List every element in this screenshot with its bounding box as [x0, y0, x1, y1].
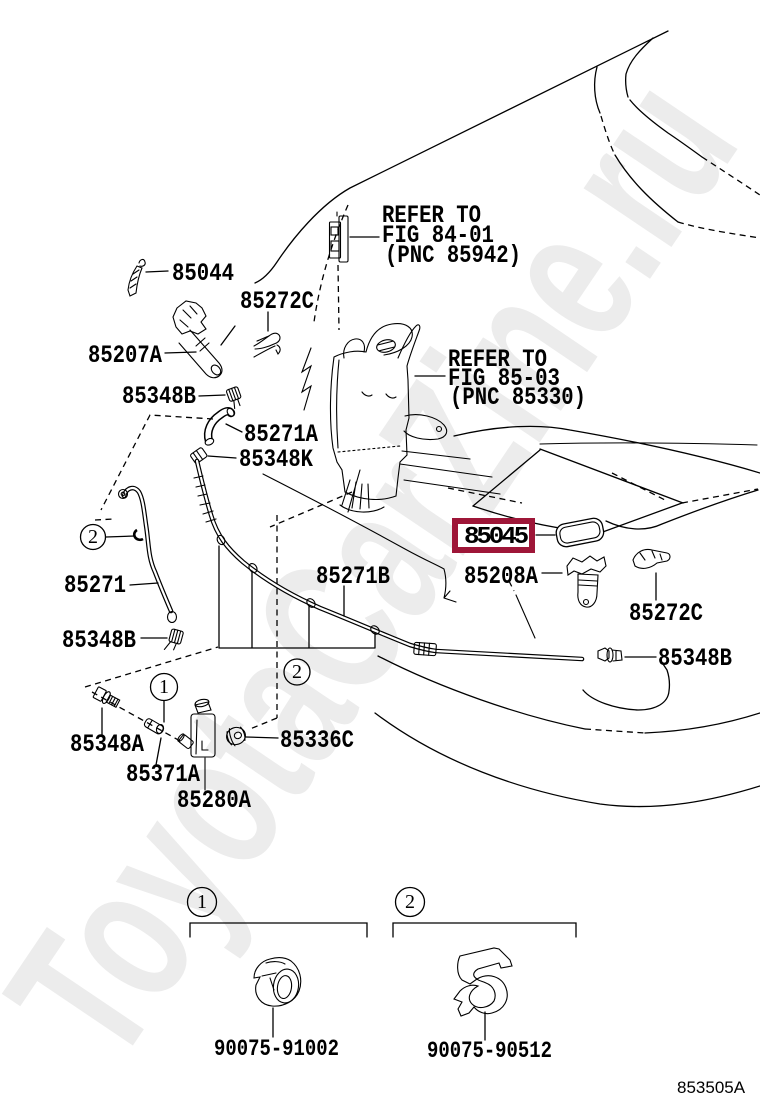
- svg-text:85371A: 85371A: [126, 760, 200, 789]
- svg-text:85272C: 85272C: [629, 599, 703, 628]
- svg-text:85208A: 85208A: [464, 562, 538, 591]
- svg-text:2: 2: [405, 891, 415, 913]
- svg-text:1: 1: [197, 891, 207, 913]
- svg-text:2: 2: [292, 661, 302, 683]
- svg-text:(PNC 85330): (PNC 85330): [450, 383, 586, 412]
- svg-text:853505A: 853505A: [677, 1078, 746, 1097]
- svg-text:85348B: 85348B: [62, 626, 136, 655]
- svg-text:85271: 85271: [64, 571, 126, 600]
- svg-text:90075-91002: 90075-91002: [214, 1036, 339, 1062]
- svg-text:85280A: 85280A: [177, 786, 251, 815]
- svg-text:85044: 85044: [172, 259, 234, 288]
- svg-text:85348A: 85348A: [70, 730, 144, 759]
- svg-text:1: 1: [159, 676, 169, 698]
- svg-text:85271B: 85271B: [316, 562, 390, 591]
- svg-text:85348K: 85348K: [239, 445, 313, 474]
- svg-text:85348B: 85348B: [122, 382, 196, 411]
- svg-text:85336C: 85336C: [280, 726, 354, 755]
- svg-text:85207A: 85207A: [88, 341, 162, 370]
- svg-text:2: 2: [88, 526, 98, 548]
- svg-text:(PNC 85942): (PNC 85942): [385, 241, 521, 270]
- svg-text:85348B: 85348B: [658, 644, 732, 673]
- svg-text:85045: 85045: [464, 524, 529, 551]
- svg-text:85272C: 85272C: [240, 287, 314, 316]
- svg-text:90075-90512: 90075-90512: [427, 1038, 552, 1064]
